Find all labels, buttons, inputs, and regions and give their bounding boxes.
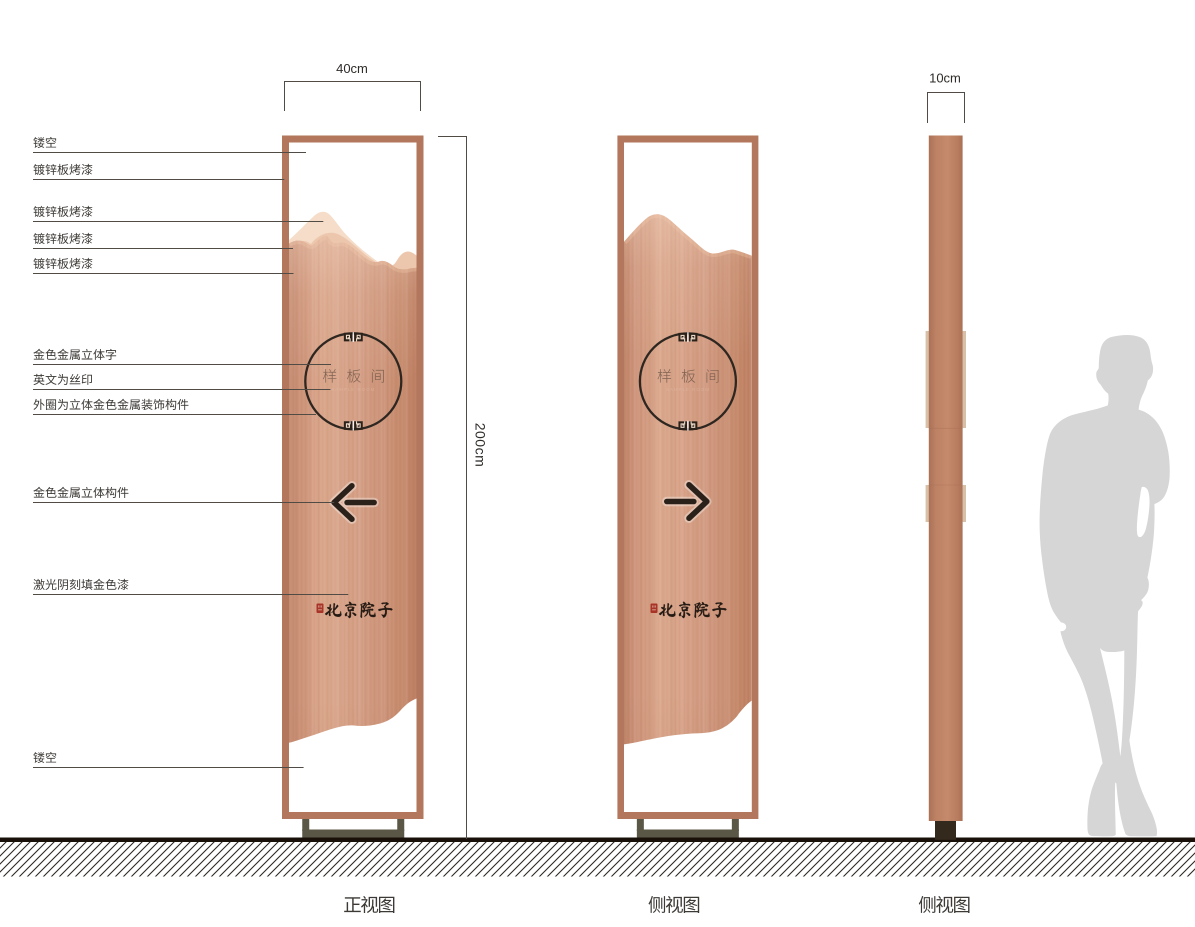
svg-text:SAMPLE ROOM: SAMPLE ROOM bbox=[666, 387, 710, 392]
svg-text:10cm: 10cm bbox=[929, 71, 961, 86]
svg-text:40cm: 40cm bbox=[336, 61, 368, 76]
svg-text:SAMPLE ROOM: SAMPLE ROOM bbox=[331, 387, 375, 392]
svg-text:200cm: 200cm bbox=[473, 423, 489, 468]
